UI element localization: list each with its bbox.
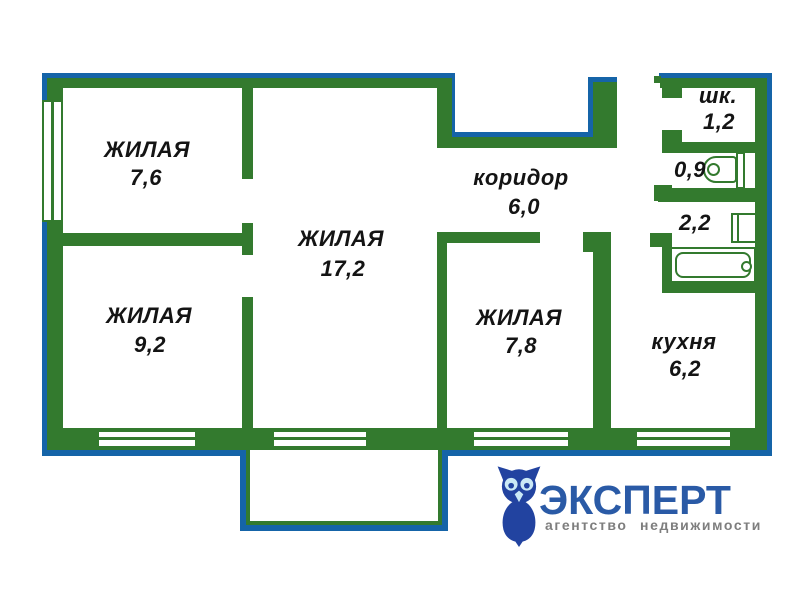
room-label-living2: ЖИЛАЯ xyxy=(298,226,384,252)
wall-living4-doorstub xyxy=(583,232,611,252)
logo-brand-text: ЭКСПЕРТ xyxy=(539,484,731,517)
outline-right xyxy=(767,73,772,456)
wall-living1-right-upper xyxy=(242,88,253,179)
room-label-living3: ЖИЛАЯ xyxy=(106,303,192,329)
toilet-bowl-icon xyxy=(707,163,720,176)
wall-junction-stub xyxy=(242,223,253,255)
logo-tagline-text: агентство недвижимости xyxy=(545,517,762,533)
wall-wc-bath-divider xyxy=(658,188,758,202)
outline-bottom-left xyxy=(42,450,246,456)
sink-icon xyxy=(731,213,757,243)
room-area-bath: 2,2 xyxy=(679,210,711,236)
bathtub-inner xyxy=(675,252,751,278)
room-area-wc: 0,9 xyxy=(674,157,706,183)
room-area-living4: 7,8 xyxy=(505,333,537,359)
room-label-corridor: коридор xyxy=(473,165,568,191)
window-living4 xyxy=(472,430,570,448)
wall-closet-stub-top xyxy=(662,88,682,98)
wall-bath-bottom xyxy=(662,283,758,293)
room-label-living4: ЖИЛАЯ xyxy=(476,305,562,331)
wall-notch-bottom xyxy=(437,137,617,148)
outline-bottom-right xyxy=(438,450,772,456)
window-living3 xyxy=(97,430,197,448)
wall-living3-right-lower xyxy=(242,297,253,428)
owl-logo-icon xyxy=(496,465,542,547)
window-mullion xyxy=(636,437,731,440)
room-label-living1: ЖИЛАЯ xyxy=(104,137,190,163)
room-area-kitchen: 6,2 xyxy=(669,356,701,382)
wall-notch-right xyxy=(593,82,617,148)
window-mullion xyxy=(51,101,54,221)
window-balcony xyxy=(272,430,368,448)
wall-closet-stub-bottom xyxy=(662,130,682,142)
room-area-corridor: 6,0 xyxy=(508,194,540,220)
room-label-kitchen: кухня xyxy=(652,329,717,355)
wall-right xyxy=(755,78,767,450)
room-area-living2: 17,2 xyxy=(321,256,366,282)
balcony-inner-outline xyxy=(246,450,442,525)
entrance-door-tick xyxy=(654,76,661,83)
wall-left-lower xyxy=(47,220,63,450)
balcony-outline xyxy=(240,450,448,531)
window-mullion xyxy=(473,437,569,440)
room-label-closet: шк. xyxy=(699,83,737,109)
room-area-living3: 9,2 xyxy=(134,332,166,358)
window-mullion xyxy=(98,437,196,440)
bathtub-drain xyxy=(741,261,752,272)
toilet-tank-icon xyxy=(736,152,745,189)
wall-left-upper xyxy=(47,78,63,102)
wall-living4-kitchen xyxy=(593,252,611,428)
sink-divider xyxy=(737,214,739,242)
wall-living4-left xyxy=(437,232,447,428)
window-kitchen xyxy=(635,430,732,448)
wall-top xyxy=(47,78,452,88)
wall-living1-living3 xyxy=(63,233,242,246)
room-area-closet: 1,2 xyxy=(703,109,735,135)
floor-plan: ЖИЛАЯ 7,6 ЖИЛАЯ 17,2 ЖИЛАЯ 9,2 коридор 6… xyxy=(0,0,800,600)
wall-living4-top xyxy=(437,232,540,243)
window-mullion xyxy=(273,437,367,440)
window-left-wall xyxy=(42,100,63,222)
room-area-living1: 7,6 xyxy=(130,165,162,191)
